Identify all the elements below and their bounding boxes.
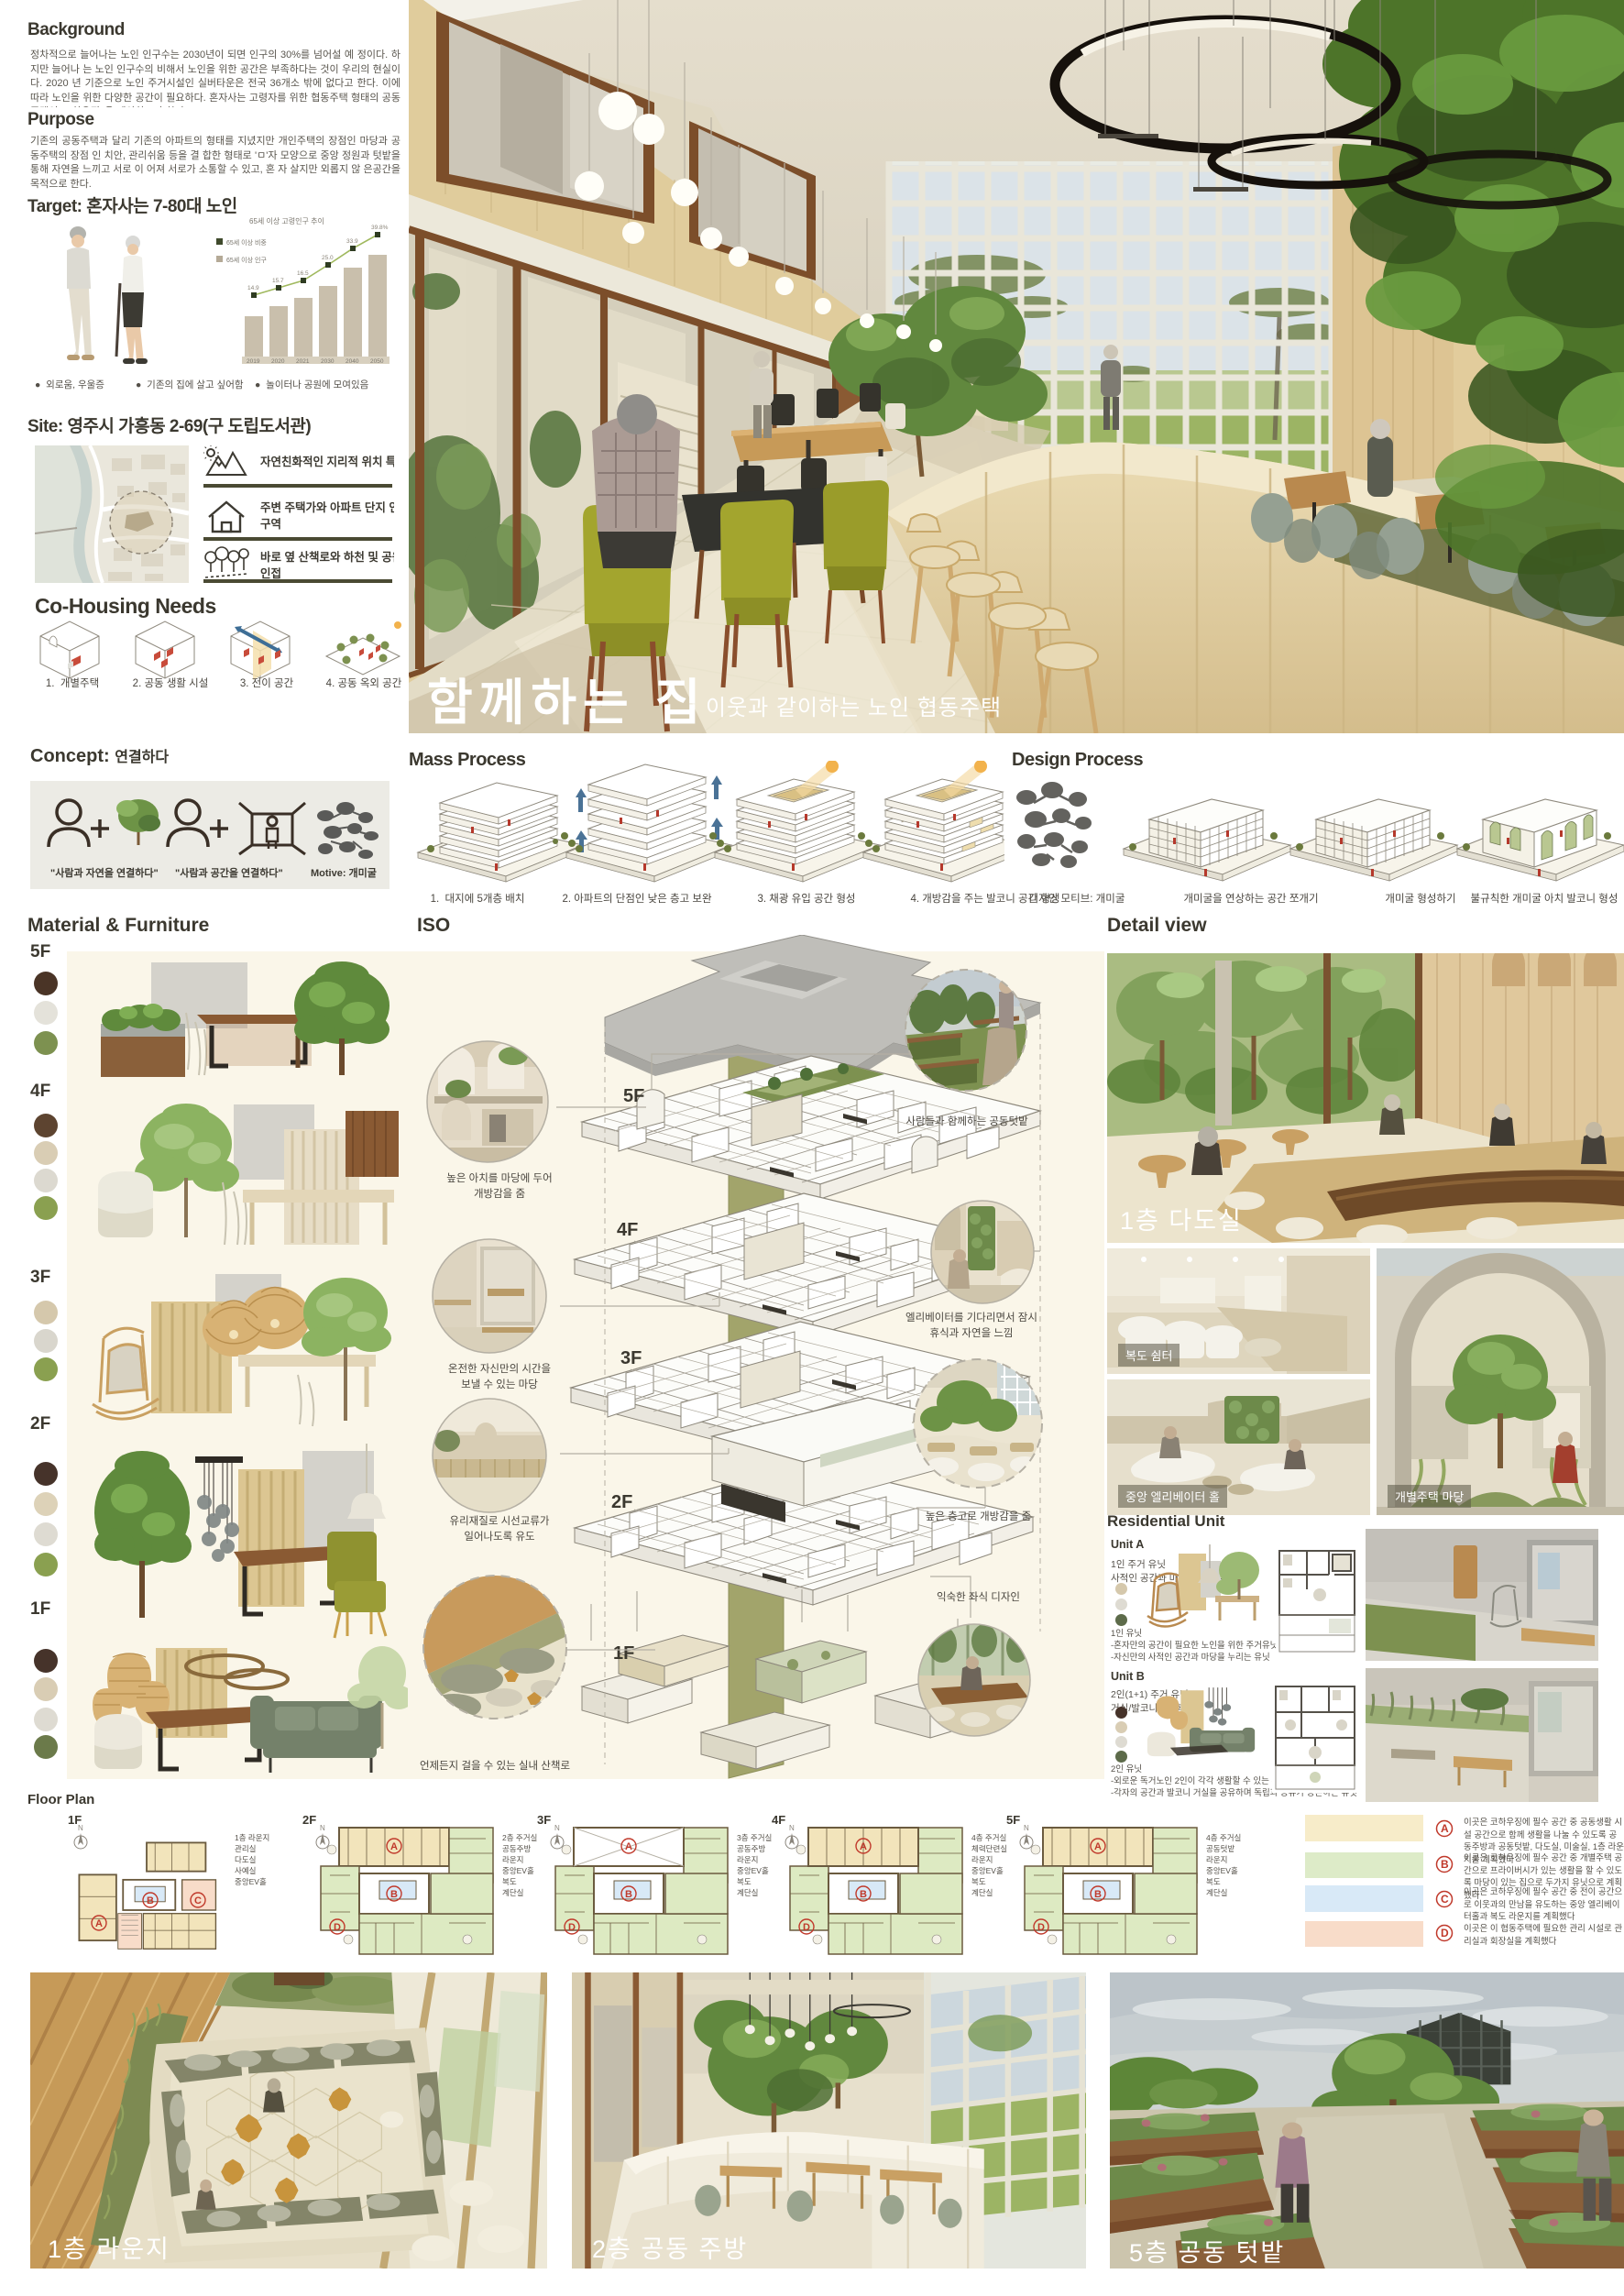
svg-text:복도: 복도: [502, 1877, 517, 1886]
svg-text:1층 라운지: 1층 라운지: [235, 1833, 269, 1842]
svg-text:1F: 1F: [613, 1643, 634, 1664]
svg-text:중앙EV홀: 중앙EV홀: [737, 1866, 769, 1875]
svg-text:4층 주거실: 4층 주거실: [971, 1833, 1006, 1842]
svg-text:A: A: [390, 1841, 398, 1852]
svg-text:라운지: 라운지: [502, 1855, 523, 1864]
svg-text:D: D: [1037, 1922, 1045, 1933]
svg-text:B: B: [1441, 1858, 1449, 1871]
svg-text:공동주방: 공동주방: [737, 1844, 765, 1853]
svg-text:중앙EV홀: 중앙EV홀: [235, 1877, 267, 1886]
svg-text:중앙EV홀: 중앙EV홀: [971, 1866, 1004, 1875]
svg-text:계단실: 계단실: [737, 1888, 758, 1897]
svg-text:2040: 2040: [346, 358, 359, 365]
svg-text:2020: 2020: [271, 358, 285, 365]
svg-text:관리실: 관리실: [235, 1844, 256, 1853]
svg-text:바로 옆 산책로와 하천 및 공원: 바로 옆 산책로와 하천 및 공원: [260, 550, 394, 564]
svg-text:2층 주거실: 2층 주거실: [502, 1833, 537, 1842]
svg-text:14.9: 14.9: [247, 285, 259, 291]
svg-text:2019: 2019: [247, 358, 260, 365]
svg-text:복도: 복도: [971, 1877, 986, 1886]
svg-text:자연친화적인 지리적 위치 특성: 자연친화적인 지리적 위치 특성: [260, 455, 394, 468]
svg-text:A: A: [1441, 1822, 1449, 1835]
svg-text:2050: 2050: [370, 358, 384, 365]
svg-text:라운지: 라운지: [971, 1855, 993, 1864]
svg-text:D: D: [568, 1922, 576, 1933]
svg-text:다도실: 다도실: [235, 1855, 256, 1864]
svg-text:구역: 구역: [260, 517, 281, 531]
svg-text:B: B: [1094, 1889, 1102, 1900]
svg-text:A: A: [860, 1841, 867, 1852]
svg-text:B: B: [147, 1895, 154, 1906]
svg-text:B: B: [860, 1889, 867, 1900]
svg-text:4층 주거실: 4층 주거실: [1206, 1833, 1241, 1842]
svg-text:D: D: [1441, 1927, 1449, 1939]
svg-text:33.9: 33.9: [346, 238, 358, 245]
svg-text:3F: 3F: [537, 1813, 551, 1827]
svg-text:C: C: [1441, 1893, 1449, 1906]
svg-text:D: D: [334, 1922, 341, 1933]
svg-text:2030: 2030: [321, 358, 335, 365]
svg-text:라운지: 라운지: [1206, 1855, 1227, 1864]
svg-text:15.7: 15.7: [272, 278, 284, 284]
svg-text:계단실: 계단실: [1206, 1888, 1227, 1897]
svg-text:2021: 2021: [296, 358, 310, 365]
svg-text:라운지: 라운지: [737, 1855, 758, 1864]
svg-text:2F: 2F: [302, 1813, 316, 1827]
svg-text:공동텃밭: 공동텃밭: [1206, 1844, 1234, 1853]
svg-text:"사람과 자연을 연결하다": "사람과 자연을 연결하다": [50, 866, 159, 879]
svg-text:Motive: 개미굴: Motive: 개미굴: [311, 866, 377, 879]
svg-text:65세 이상 인구: 65세 이상 인구: [226, 256, 267, 264]
svg-text:공동주방: 공동주방: [502, 1844, 531, 1853]
svg-text:C: C: [194, 1895, 202, 1906]
svg-text:4F: 4F: [772, 1813, 785, 1827]
svg-text:"사람과 공간을 연결하다": "사람과 공간을 연결하다": [175, 866, 283, 879]
svg-text:A: A: [95, 1918, 103, 1929]
svg-text:체력단련실: 체력단련실: [971, 1844, 1007, 1853]
svg-text:B: B: [390, 1889, 398, 1900]
svg-text:3층 주거실: 3층 주거실: [737, 1833, 772, 1842]
svg-text:주변 주택가와 아파트 단지 인근: 주변 주택가와 아파트 단지 인근: [260, 500, 394, 514]
svg-text:D: D: [803, 1922, 810, 1933]
svg-text:2F: 2F: [611, 1492, 632, 1512]
svg-text:25.0: 25.0: [322, 255, 334, 261]
svg-text:5F: 5F: [1006, 1813, 1020, 1827]
svg-text:16.5: 16.5: [297, 270, 309, 277]
svg-text:4F: 4F: [617, 1220, 638, 1240]
svg-text:65세 이상 비중: 65세 이상 비중: [226, 238, 267, 247]
svg-text:3F: 3F: [620, 1348, 642, 1368]
svg-text:복도: 복도: [1206, 1877, 1221, 1886]
svg-text:계단실: 계단실: [502, 1888, 523, 1897]
svg-text:중앙EV홀: 중앙EV홀: [1206, 1866, 1238, 1875]
svg-text:인접: 인접: [260, 566, 281, 580]
svg-text:계단실: 계단실: [971, 1888, 993, 1897]
svg-text:A: A: [1094, 1841, 1102, 1852]
svg-text:65세 이상 고령인구 추이: 65세 이상 고령인구 추이: [249, 216, 324, 225]
svg-text:39.8%: 39.8%: [371, 225, 389, 231]
svg-text:복도: 복도: [737, 1877, 752, 1886]
svg-text:5F: 5F: [623, 1086, 644, 1106]
svg-text:A: A: [625, 1841, 632, 1852]
svg-text:중앙EV홀: 중앙EV홀: [502, 1866, 534, 1875]
svg-text:B: B: [625, 1889, 632, 1900]
svg-text:사예실: 사예실: [235, 1866, 256, 1875]
